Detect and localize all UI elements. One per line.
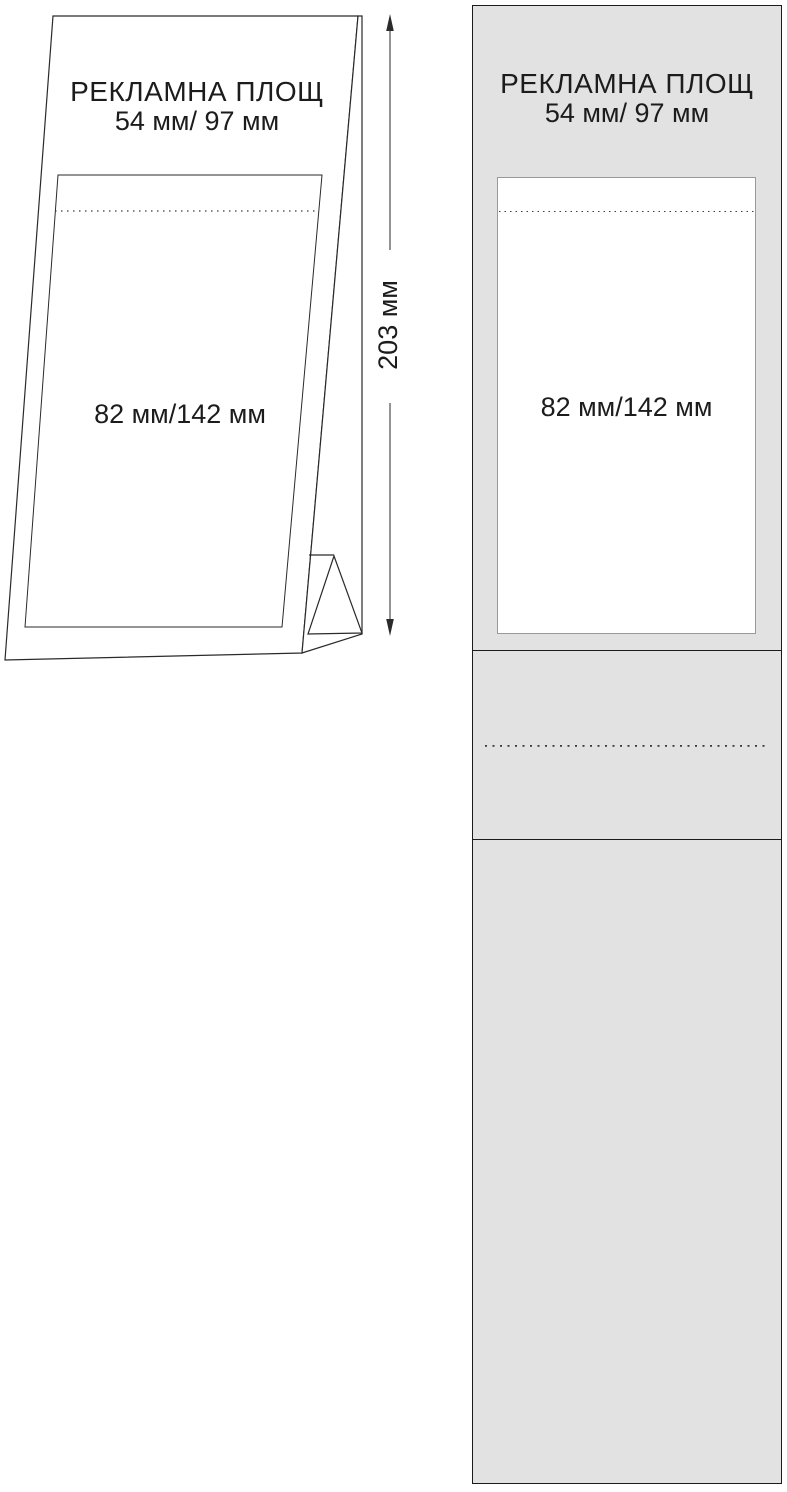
flat-middle-section bbox=[472, 650, 782, 840]
fold-dotted-line bbox=[499, 211, 754, 213]
height-dimension-label: 203 мм bbox=[374, 265, 402, 385]
perspective-area-label: 82 мм/142 мм bbox=[20, 400, 340, 428]
dimension-arrow-up-icon bbox=[386, 14, 394, 31]
dimension-arrow-down-icon bbox=[386, 619, 394, 636]
flat-size-label: 54 мм/ 97 мм bbox=[473, 99, 781, 127]
flat-top-section: РЕКЛАМНА ПЛОЩ 54 мм/ 97 мм 82 мм/142 мм bbox=[472, 5, 782, 651]
flat-bottom-section bbox=[472, 839, 782, 1484]
flat-ad-area: 82 мм/142 мм bbox=[497, 177, 756, 634]
flat-area-label: 82 мм/142 мм bbox=[498, 393, 755, 421]
fold-dotted-line bbox=[485, 745, 765, 747]
tent-card-spec-diagram: РЕКЛАМНА ПЛОЩ 54 мм/ 97 мм 82 мм/142 мм … bbox=[0, 0, 787, 1492]
perspective-title: РЕКЛАМНА ПЛОЩ bbox=[36, 78, 358, 106]
flat-title: РЕКЛАМНА ПЛОЩ bbox=[473, 70, 781, 98]
perspective-size-label: 54 мм/ 97 мм bbox=[36, 107, 358, 135]
flat-layout-panel: РЕКЛАМНА ПЛОЩ 54 мм/ 97 мм 82 мм/142 мм bbox=[472, 5, 782, 1484]
